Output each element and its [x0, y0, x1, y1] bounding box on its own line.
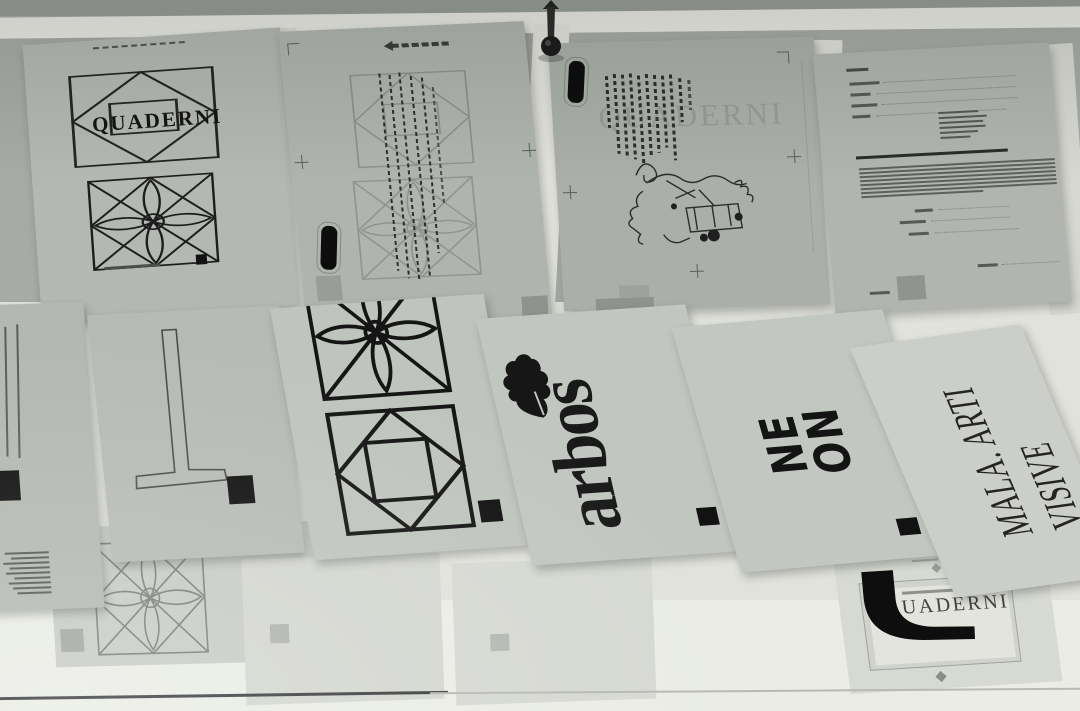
color-swatch — [478, 499, 504, 522]
signature-line — [935, 228, 1019, 233]
gray-swatch — [316, 275, 343, 301]
caption-text-line — [13, 586, 51, 589]
registration-cross — [689, 264, 704, 278]
crop-corner-mark — [777, 51, 790, 63]
thin-rule — [4, 327, 8, 457]
color-swatch — [227, 475, 256, 504]
form-field-line — [876, 86, 1016, 94]
label-sticker-ink — [567, 60, 585, 103]
label-sticker — [316, 221, 341, 275]
diamond-mark — [935, 671, 946, 682]
color-swatch — [896, 517, 922, 535]
arrow-head — [383, 41, 393, 51]
color-swatch — [696, 507, 720, 526]
address-line — [940, 135, 970, 139]
caption-text-line — [6, 571, 50, 574]
label-sticker-ink — [320, 225, 337, 270]
form-field-label — [849, 81, 879, 85]
registration-cross — [294, 155, 309, 170]
diamond-in-square-motif-bold — [323, 402, 479, 538]
proof-sheet-quaderni: QUADERNI — [23, 27, 300, 322]
proof-sheet-inverted-t — [87, 305, 305, 562]
registration-cross — [563, 185, 578, 199]
proof-sheet-washed — [452, 557, 657, 706]
crop-corner-mark — [287, 43, 300, 55]
push-pin-icon — [528, 0, 568, 64]
form-field-line — [883, 75, 1015, 83]
address-line — [940, 125, 986, 129]
address-line — [940, 130, 978, 134]
address-line — [939, 120, 983, 124]
crop-line — [801, 61, 814, 251]
caption-text-line — [5, 551, 49, 554]
tick-mark — [912, 559, 938, 563]
ghost-quaderni-title: QUADERNI — [585, 95, 797, 136]
signature-line — [939, 206, 1009, 211]
signature-label — [909, 232, 929, 236]
smudge-mark — [619, 285, 650, 298]
gray-swatch — [490, 634, 510, 652]
caption-text-line — [9, 581, 51, 584]
photo-proof-wall: QUADERNI — [0, 0, 1080, 711]
caption-text-line — [17, 591, 51, 594]
gray-swatch — [270, 624, 290, 644]
date-line — [1002, 261, 1060, 265]
proof-sheet-faint-quaderni — [278, 21, 552, 325]
stamp-box — [896, 275, 926, 300]
stamp-label — [870, 291, 890, 295]
signature-line — [932, 217, 1010, 222]
caption-text-line — [11, 556, 49, 559]
address-line — [938, 110, 978, 114]
registration-cross — [787, 149, 802, 163]
signature-label — [900, 220, 926, 224]
arrow-mark — [392, 41, 450, 48]
date-label — [978, 263, 998, 267]
form-field-label — [851, 103, 877, 107]
proof-sheet-sketch: QUADERNI — [548, 37, 830, 312]
caption-text-line — [14, 576, 50, 579]
form-field-line — [881, 97, 1017, 105]
thin-rule — [16, 324, 20, 458]
petal-rosette-motif-bold — [298, 294, 455, 404]
caption-text-line — [3, 561, 49, 564]
inverted-t-motif — [110, 316, 240, 499]
ink-sketch-illustration — [612, 144, 783, 262]
color-swatch — [0, 470, 21, 501]
form-label-line — [846, 68, 868, 72]
gray-swatch — [60, 629, 84, 653]
proof-sheet-washed — [242, 553, 445, 706]
address-line — [939, 115, 987, 120]
color-swatch — [196, 254, 208, 265]
caption-text-line — [10, 566, 50, 569]
form-heading-line — [856, 149, 1008, 160]
proof-sheet-order-form — [813, 42, 1071, 314]
form-field-label — [850, 93, 870, 97]
form-field-label — [852, 115, 870, 118]
crop-dash-line — [93, 41, 185, 49]
registration-cross — [521, 143, 536, 158]
signature-label — [915, 209, 933, 212]
